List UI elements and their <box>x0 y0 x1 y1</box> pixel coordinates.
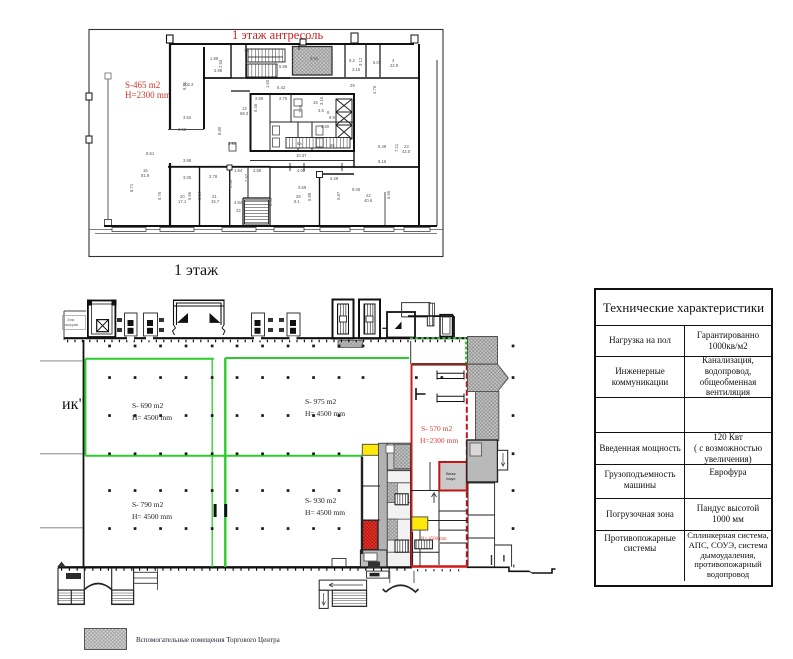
svg-text:3.52: 3.52 <box>178 127 187 132</box>
svg-text:22: 22 <box>236 208 241 213</box>
svg-text:9.45: 9.45 <box>352 187 361 192</box>
svg-text:X1: X1 <box>244 48 250 53</box>
svg-text:3.05: 3.05 <box>183 175 192 180</box>
svg-text:2.60: 2.60 <box>321 124 330 129</box>
svg-text:9.9: 9.9 <box>329 115 335 120</box>
svg-text:H= 4500 mm: H= 4500 mm <box>132 512 172 521</box>
svg-text:H= 4500 mm: H= 4500 mm <box>305 508 345 517</box>
svg-text:68.3: 68.3 <box>240 111 249 116</box>
svg-text:4.76: 4.76 <box>372 85 377 94</box>
svg-text:3.58: 3.58 <box>253 168 262 173</box>
svg-text:5.46: 5.46 <box>253 103 258 112</box>
svg-text:S- 570 m2: S- 570 m2 <box>421 424 453 433</box>
svg-text:2.75: 2.75 <box>279 96 288 101</box>
svg-text:S-465 m2: S-465 m2 <box>125 80 160 90</box>
svg-text:6.16: 6.16 <box>378 159 387 164</box>
svg-text:H= 4500 mm: H= 4500 mm <box>305 409 345 418</box>
svg-text:6.42: 6.42 <box>277 85 286 90</box>
svg-text:1.60: 1.60 <box>265 79 270 88</box>
svg-text:3.52: 3.52 <box>183 115 192 120</box>
svg-text:8.61: 8.61 <box>146 151 155 156</box>
svg-text:22.9: 22.9 <box>390 63 399 68</box>
svg-text:разгрузки: разгрузки <box>64 323 78 327</box>
svg-text:1 этаж антресоль: 1 этаж антресоль <box>232 28 323 42</box>
svg-text:3.16: 3.16 <box>319 96 324 105</box>
svg-text:5.64: 5.64 <box>197 191 202 200</box>
svg-text:5.76: 5.76 <box>157 191 162 200</box>
svg-text:15: 15 <box>313 100 318 105</box>
svg-text:3.12: 3.12 <box>358 57 363 66</box>
svg-text:9.2: 9.2 <box>349 58 355 63</box>
svg-text:3.94: 3.94 <box>310 56 319 61</box>
svg-text:2.64: 2.64 <box>268 197 273 206</box>
svg-text:8.80: 8.80 <box>217 126 222 135</box>
svg-text:7.21: 7.21 <box>394 143 399 152</box>
svg-text:покуп.: покуп. <box>446 477 456 481</box>
svg-text:2.58: 2.58 <box>255 96 264 101</box>
svg-text:3.15: 3.15 <box>352 67 361 72</box>
svg-text:6a: 6a <box>297 141 302 146</box>
svg-text:2.59: 2.59 <box>228 179 233 188</box>
svg-text:81.9: 81.9 <box>141 173 150 178</box>
svg-text:2.29: 2.29 <box>330 176 339 181</box>
svg-text:5.87: 5.87 <box>336 191 341 200</box>
svg-text:5.49: 5.49 <box>378 144 387 149</box>
svg-text:2.62: 2.62 <box>244 173 249 182</box>
svg-text:10.37: 10.37 <box>296 153 307 158</box>
svg-text:9.1: 9.1 <box>294 199 300 204</box>
svg-text:2.78: 2.78 <box>209 174 218 179</box>
svg-text:4.02: 4.02 <box>297 168 306 173</box>
svg-text:3.5: 3.5 <box>318 108 324 113</box>
svg-text:1.64: 1.64 <box>234 168 243 173</box>
svg-text:H= 4500 mm: H= 4500 mm <box>132 413 172 422</box>
svg-text:2.93: 2.93 <box>218 59 223 68</box>
svg-text:3.98: 3.98 <box>183 158 192 163</box>
svg-text:42.5: 42.5 <box>402 149 411 154</box>
svg-text:Зона: Зона <box>67 318 74 322</box>
svg-text:29: 29 <box>350 83 355 88</box>
svg-text:17.1: 17.1 <box>178 199 187 204</box>
svg-text:S- 930 m2: S- 930 m2 <box>305 496 337 505</box>
svg-text:5.96: 5.96 <box>279 64 288 69</box>
svg-text:8.71: 8.71 <box>129 183 134 192</box>
svg-text:багаж: багаж <box>446 472 456 476</box>
svg-text:5.66: 5.66 <box>187 191 192 200</box>
svg-text:202.2: 202.2 <box>183 82 194 87</box>
svg-text:15.7: 15.7 <box>211 199 220 204</box>
svg-text:S- 790 m2: S- 790 m2 <box>132 500 164 509</box>
svg-text:5.66: 5.66 <box>386 190 391 199</box>
svg-text:5.89: 5.89 <box>307 192 312 201</box>
svg-text:H=2300 mm: H=2300 mm <box>125 90 171 100</box>
svg-text:S- 690 m2: S- 690 m2 <box>132 401 164 410</box>
svg-text:ик": ик" <box>62 396 85 413</box>
svg-text:3.59: 3.59 <box>298 185 307 190</box>
svg-text:4.84: 4.84 <box>234 200 243 205</box>
svg-text:H=2300 mm: H=2300 mm <box>420 436 458 445</box>
svg-text:S- 975 m2: S- 975 m2 <box>305 397 337 406</box>
svg-text:86: 86 <box>330 143 335 148</box>
svg-text:7.55: 7.55 <box>298 104 303 113</box>
svg-text:5.02: 5.02 <box>373 60 382 65</box>
svg-text:40.6: 40.6 <box>364 198 373 203</box>
